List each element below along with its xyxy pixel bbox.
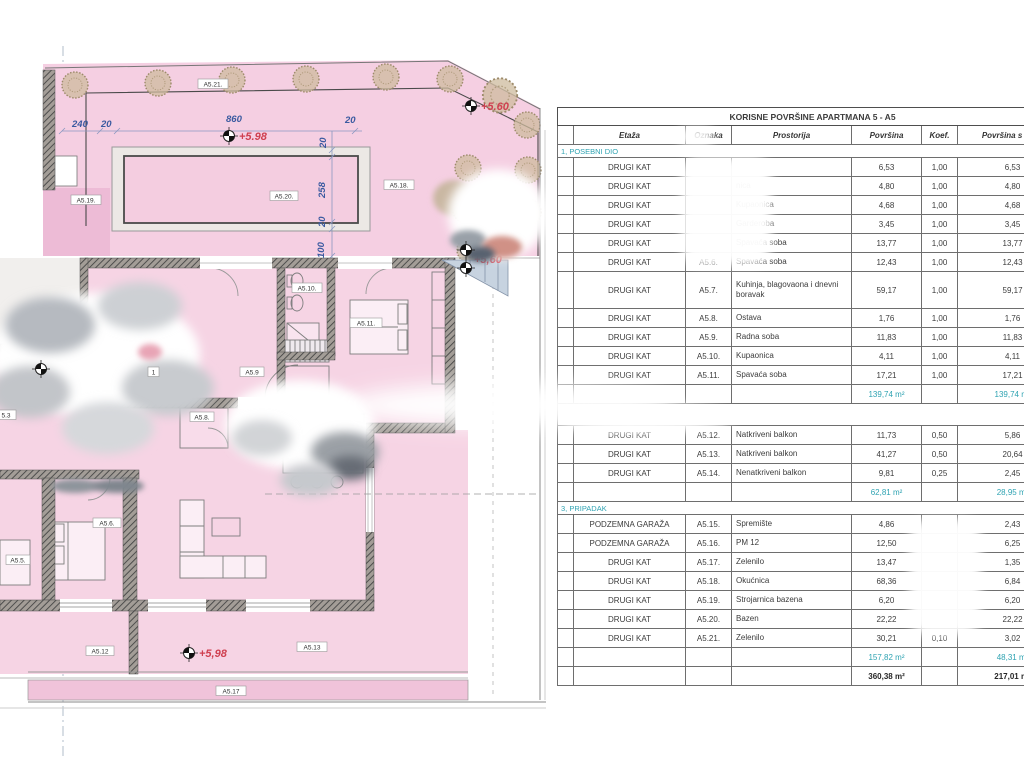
section-header: 1, POSEBNI DIO — [558, 145, 1024, 158]
subtotal-row: 157,82 m²48,31 m² — [558, 648, 1024, 667]
cell-povrsina: 6,53 — [852, 158, 922, 177]
cell-etaza: DRUGI KAT — [574, 629, 686, 648]
cell-blank — [922, 483, 958, 502]
section-header: 3, PRIPADAK — [558, 502, 1024, 515]
dim-240: 240 — [71, 119, 89, 130]
cell-blank — [558, 629, 574, 648]
total-row: 360,38 m²217,01 m² — [558, 667, 1024, 686]
table-header-row: Etaža Oznaka Prostorija Površina Koef. P… — [558, 126, 1024, 145]
section-header-row: 3, PRIPADAK — [558, 502, 1024, 515]
cell-etaza: PODZEMNA GARAŽA — [574, 515, 686, 534]
cell-oznaka: A5.19. — [686, 591, 732, 610]
label-a510: A5.10. — [292, 283, 322, 293]
cell-koef: 1,00 — [922, 272, 958, 309]
label-a521: A5.21. — [198, 79, 228, 89]
cell-povrsina-s-koef: 3,02 — [958, 629, 1024, 648]
cell-blank — [686, 648, 732, 667]
cell-povrsina: 11,83 — [852, 328, 922, 347]
cell-oznaka: A5.10. — [686, 347, 732, 366]
cell-oznaka: A5.12. — [686, 426, 732, 445]
cell-povrsina: 68,36 — [852, 572, 922, 591]
table-row: DRUGI KATA5.9.Radna soba11,831,0011,83 — [558, 328, 1024, 347]
table-row: DRUGI KATA5.14.Nenatkriveni balkon9,810,… — [558, 464, 1024, 483]
cell-blank — [558, 572, 574, 591]
svg-text:A5.12: A5.12 — [92, 649, 109, 656]
cell-koef: 0,50 — [922, 445, 958, 464]
greenery-strip — [28, 680, 468, 700]
label-a518: A5.18. — [384, 180, 414, 190]
cell-blank — [732, 483, 852, 502]
cell-blank — [558, 591, 574, 610]
section-header — [558, 404, 1024, 426]
label-a513: A5.13 — [297, 642, 327, 652]
cell-blank — [558, 385, 574, 404]
cell-prostorija: Spavaća soba — [732, 366, 852, 385]
elevation-598-top: +5.98 — [239, 131, 268, 143]
cell-koef: 0,10 — [922, 629, 958, 648]
cell-prostorija: Spavaća soba — [732, 253, 852, 272]
cell-prostorija: Zelenilo — [732, 553, 852, 572]
cell-prostorija: Nenatkriveni balkon — [732, 464, 852, 483]
cell-blank — [574, 483, 686, 502]
cell-povrsina: 17,21 — [852, 366, 922, 385]
label-a55: A5.5. — [6, 555, 30, 565]
cell-etaza: DRUGI KAT — [574, 553, 686, 572]
cell-blank — [922, 667, 958, 686]
cell-prostorija: Strojarnica bazena — [732, 591, 852, 610]
cell-oznaka: A5.17. — [686, 553, 732, 572]
cell-blank — [922, 385, 958, 404]
cell-povrsina: 4,80 — [852, 177, 922, 196]
cell-blank — [558, 667, 574, 686]
table-row: DRUGI KATA5.6.Spavaća soba12,431,0012,43 — [558, 253, 1024, 272]
cell-koef: 0,50 — [922, 426, 958, 445]
cell-povrsina: 4,86 — [852, 515, 922, 534]
dim-20a: 20 — [100, 119, 112, 130]
cell-koef: 1,00 — [922, 215, 958, 234]
cell-koef: 1,00 — [922, 177, 958, 196]
cell-oznaka: A5.21. — [686, 629, 732, 648]
area-table-container: KORISNE POVRŠINE APARTMANA 5 - A5 Etaža … — [557, 107, 1024, 707]
cell-blank — [732, 385, 852, 404]
cell-oznaka: A5.20. — [686, 610, 732, 629]
cell-blank — [558, 610, 574, 629]
table-row: DRUGI KAT6,531,006,53 — [558, 158, 1024, 177]
svg-text:5.3: 5.3 — [1, 413, 10, 420]
cell-koef — [922, 591, 958, 610]
dim-100: 100 — [316, 241, 327, 258]
cell-blank — [574, 385, 686, 404]
cell-prostorija: Bazen — [732, 610, 852, 629]
cell-povrsina-s-koef: 59,17 — [958, 272, 1024, 309]
cell-povrsina: 59,17 — [852, 272, 922, 309]
label-a511: A5.11. — [350, 318, 382, 328]
cell-koef: 0,25 — [922, 464, 958, 483]
col-header-prostorija: Prostorija — [732, 126, 852, 145]
svg-text:A5.11.: A5.11. — [357, 321, 376, 328]
cell-povrsina-s-koef: 3,45 — [958, 215, 1024, 234]
cell-blank — [558, 234, 574, 253]
svg-text:A5.9: A5.9 — [245, 370, 259, 377]
cell-oznaka: A5.14. — [686, 464, 732, 483]
cell-povrsina: 41,27 — [852, 445, 922, 464]
cell-prostorija: Ostava — [732, 309, 852, 328]
svg-text:A5.10.: A5.10. — [298, 286, 317, 293]
cell-oznaka: A5.16. — [686, 534, 732, 553]
subtotal-povrsina-s-koef: 139,74 m² — [958, 385, 1024, 404]
cell-povrsina: 4,11 — [852, 347, 922, 366]
cell-koef — [922, 610, 958, 629]
table-row: DRUGI KATKupaonica4,681,004,68 — [558, 196, 1024, 215]
label-a519: A5.19. — [71, 195, 101, 205]
cell-etaza: DRUGI KAT — [574, 272, 686, 309]
cell-povrsina: 12,50 — [852, 534, 922, 553]
subtotal-povrsina-s-koef: 28,95 m² — [958, 483, 1024, 502]
label-a56: A5.6. — [93, 518, 121, 528]
elevation-598-bottom: +5,98 — [199, 648, 228, 660]
table-row: DRUGI KATGarderoba3,451,003,45 — [558, 215, 1024, 234]
cell-oznaka — [686, 234, 732, 253]
cell-povrsina: 12,43 — [852, 253, 922, 272]
cell-blank — [686, 385, 732, 404]
svg-text:A5.8.: A5.8. — [194, 415, 209, 422]
cell-oznaka: A5.11. — [686, 366, 732, 385]
cell-blank — [574, 667, 686, 686]
cell-prostorija: Garderoba — [732, 215, 852, 234]
cell-oznaka: A5.18. — [686, 572, 732, 591]
dim-20b: 20 — [344, 115, 356, 126]
cell-povrsina-s-koef: 1,35 — [958, 553, 1024, 572]
table-row: DRUGI KATA5.20.Bazen22,2222,22 — [558, 610, 1024, 629]
table-row: DRUGI KATA5.21.Zelenilo30,210,103,02 — [558, 629, 1024, 648]
cell-etaza: DRUGI KAT — [574, 253, 686, 272]
cell-oznaka — [686, 158, 732, 177]
section-header-row: 1, POSEBNI DIO — [558, 145, 1024, 158]
cell-oznaka: A5.15. — [686, 515, 732, 534]
cell-oznaka — [686, 215, 732, 234]
table-row: DRUGI KATA5.11.Spavaća soba17,211,0017,2… — [558, 366, 1024, 385]
cell-prostorija: nica — [732, 177, 852, 196]
cell-oznaka: A5.13. — [686, 445, 732, 464]
cell-etaza: DRUGI KAT — [574, 215, 686, 234]
cell-oznaka — [686, 177, 732, 196]
screenshot-stage: 240 20 860 20 20 258 20 100 +5.98 +5.60 … — [0, 0, 1024, 768]
cell-povrsina: 11,73 — [852, 426, 922, 445]
section-header-row-blurred — [558, 404, 1024, 426]
cell-povrsina: 9,81 — [852, 464, 922, 483]
cell-etaza: DRUGI KAT — [574, 464, 686, 483]
cell-etaza: PODZEMNA GARAŽA — [574, 534, 686, 553]
cell-blank — [558, 464, 574, 483]
cell-koef: 1,00 — [922, 347, 958, 366]
cell-povrsina-s-koef: 2,43 — [958, 515, 1024, 534]
cell-povrsina: 13,47 — [852, 553, 922, 572]
cell-prostorija: PM 12 — [732, 534, 852, 553]
cell-koef: 1,00 — [922, 158, 958, 177]
cell-etaza: DRUGI KAT — [574, 158, 686, 177]
cell-povrsina: 13,77 — [852, 234, 922, 253]
cell-etaza: DRUGI KAT — [574, 426, 686, 445]
cell-oznaka: A5.7. — [686, 272, 732, 309]
subtotal-povrsina-s-koef: 48,31 m² — [958, 648, 1024, 667]
total-povrsina: 360,38 m² — [852, 667, 922, 686]
subtotal-povrsina: 62,81 m² — [852, 483, 922, 502]
cell-blank — [574, 648, 686, 667]
cell-povrsina-s-koef: 6,20 — [958, 591, 1024, 610]
label-a520: A5.20. — [270, 191, 298, 201]
cell-etaza: DRUGI KAT — [574, 177, 686, 196]
cell-prostorija: Kupaonica — [732, 347, 852, 366]
cell-povrsina-s-koef: 12,43 — [958, 253, 1024, 272]
cell-povrsina: 3,45 — [852, 215, 922, 234]
cell-etaza: DRUGI KAT — [574, 591, 686, 610]
cell-povrsina-s-koef: 6,53 — [958, 158, 1024, 177]
cell-blank — [558, 553, 574, 572]
table-row: DRUGI KATnica4,801,004,80 — [558, 177, 1024, 196]
cell-prostorija: Natkriveni balkon — [732, 426, 852, 445]
subtotal-povrsina: 157,82 m² — [852, 648, 922, 667]
col-header-etaza: Etaža — [574, 126, 686, 145]
cell-blank — [558, 215, 574, 234]
cell-povrsina-s-koef: 5,86 — [958, 426, 1024, 445]
cell-blank — [558, 648, 574, 667]
svg-text:A5.13: A5.13 — [304, 645, 321, 652]
cell-blank — [732, 667, 852, 686]
col-header-koef: Koef. — [922, 126, 958, 145]
cell-koef: 1,00 — [922, 253, 958, 272]
cell-blank — [558, 309, 574, 328]
cell-blank — [558, 445, 574, 464]
cell-etaza: DRUGI KAT — [574, 196, 686, 215]
col-header-oznaka: Oznaka — [686, 126, 732, 145]
cell-koef — [922, 534, 958, 553]
cell-etaza: DRUGI KAT — [574, 366, 686, 385]
svg-text:A5.17: A5.17 — [223, 689, 240, 696]
cell-prostorija: Kupaonica — [732, 196, 852, 215]
cell-povrsina: 6,20 — [852, 591, 922, 610]
svg-text:A5.21.: A5.21. — [204, 82, 223, 89]
table-row: DRUGI KATA5.8.Ostava1,761,001,76 — [558, 309, 1024, 328]
label-a58: A5.8. — [190, 412, 214, 422]
table-row: DRUGI KATA5.19.Strojarnica bazena6,206,2… — [558, 591, 1024, 610]
total-povrsina-s-koef: 217,01 m² — [958, 667, 1024, 686]
cell-prostorija: Zelenilo — [732, 629, 852, 648]
cell-etaza: DRUGI KAT — [574, 610, 686, 629]
cell-povrsina: 30,21 — [852, 629, 922, 648]
floor-plan: 240 20 860 20 20 258 20 100 +5.98 +5.60 … — [0, 0, 560, 768]
dim-860: 860 — [226, 114, 243, 125]
cell-koef — [922, 572, 958, 591]
cell-blank — [922, 648, 958, 667]
cell-blank — [732, 648, 852, 667]
cell-etaza: DRUGI KAT — [574, 234, 686, 253]
cell-prostorija: Radna soba — [732, 328, 852, 347]
cell-povrsina-s-koef: 2,45 — [958, 464, 1024, 483]
table-row: DRUGI KATA5.12.Natkriveni balkon11,730,5… — [558, 426, 1024, 445]
cell-blank — [558, 347, 574, 366]
table-body: KORISNE POVRŠINE APARTMANA 5 - A5 Etaža … — [558, 108, 1024, 686]
cell-povrsina: 1,76 — [852, 309, 922, 328]
cell-blank — [558, 366, 574, 385]
subtotal-row: 62,81 m²28,95 m² — [558, 483, 1024, 502]
cell-koef: 1,00 — [922, 328, 958, 347]
cell-etaza: DRUGI KAT — [574, 328, 686, 347]
cell-blank — [558, 426, 574, 445]
cell-povrsina-s-koef: 22,22 — [958, 610, 1024, 629]
svg-text:A5.18.: A5.18. — [390, 183, 409, 190]
dim-20c: 20 — [318, 137, 329, 149]
label-a512: A5.12 — [86, 646, 114, 656]
dim-20d: 20 — [317, 216, 328, 228]
cell-povrsina-s-koef: 6,84 — [958, 572, 1024, 591]
dim-258: 258 — [317, 181, 328, 199]
wall-terrace-left — [43, 70, 55, 190]
cell-etaza: DRUGI KAT — [574, 572, 686, 591]
subtotal-row: 139,74 m²139,74 m² — [558, 385, 1024, 404]
cell-koef: 1,00 — [922, 309, 958, 328]
svg-text:A5.6.: A5.6. — [99, 521, 114, 528]
cell-oznaka: A5.8. — [686, 309, 732, 328]
table-row: PODZEMNA GARAŽAA5.16.PM 1212,506,25 — [558, 534, 1024, 553]
table-title: KORISNE POVRŠINE APARTMANA 5 - A5 — [558, 108, 1024, 126]
table-row: DRUGI KATA5.17.Zelenilo13,471,35 — [558, 553, 1024, 572]
cell-blank — [558, 515, 574, 534]
cell-koef: 1,00 — [922, 234, 958, 253]
cell-povrsina: 4,68 — [852, 196, 922, 215]
elevation-560-top: +5.60 — [481, 101, 510, 113]
cell-etaza: DRUGI KAT — [574, 445, 686, 464]
cell-prostorija: Kuhinja, blagovaona i dnevni boravak — [732, 272, 852, 309]
cell-povrsina-s-koef: 4,68 — [958, 196, 1024, 215]
cell-koef: 1,00 — [922, 366, 958, 385]
cell-blank — [558, 328, 574, 347]
svg-text:A5.5.: A5.5. — [10, 558, 25, 565]
cell-povrsina-s-koef: 11,83 — [958, 328, 1024, 347]
cell-oznaka — [686, 196, 732, 215]
cell-koef — [922, 553, 958, 572]
table-row: DRUGI KATA5.10.Kupaonica4,111,004,11 — [558, 347, 1024, 366]
cell-prostorija: Spremište — [732, 515, 852, 534]
col-header-povrsina: Površina — [852, 126, 922, 145]
cell-povrsina-s-koef: 6,25 — [958, 534, 1024, 553]
cell-blank — [686, 483, 732, 502]
table-row: PODZEMNA GARAŽAA5.15.Spremište4,862,43 — [558, 515, 1024, 534]
cell-oznaka: A5.9. — [686, 328, 732, 347]
label-a59: A5.9 — [240, 367, 264, 377]
cell-koef: 1,00 — [922, 196, 958, 215]
cell-koef — [922, 515, 958, 534]
label-door1: 1 — [148, 367, 159, 377]
col-header-blank — [558, 126, 574, 145]
cell-oznaka: A5.6. — [686, 253, 732, 272]
cell-blank — [686, 667, 732, 686]
table-title-row: KORISNE POVRŠINE APARTMANA 5 - A5 — [558, 108, 1024, 126]
table-row: DRUGI KATSpavaća soba13,771,0013,77 — [558, 234, 1024, 253]
cell-prostorija: Okućnica — [732, 572, 852, 591]
cell-povrsina: 22,22 — [852, 610, 922, 629]
label-a517: A5.17 — [216, 686, 246, 696]
col-header-povrsina-s-koef: Površina s koef. — [958, 126, 1024, 145]
svg-text:A5.20.: A5.20. — [275, 194, 294, 201]
table-row: DRUGI KATA5.7.Kuhinja, blagovaona i dnev… — [558, 272, 1024, 309]
svg-text:A5.19.: A5.19. — [77, 198, 96, 205]
cell-prostorija: Spavaća soba — [732, 234, 852, 253]
cell-blank — [558, 253, 574, 272]
subtotal-povrsina: 139,74 m² — [852, 385, 922, 404]
cell-prostorija — [732, 158, 852, 177]
balcony-strip — [0, 611, 468, 674]
table-row: DRUGI KATA5.13.Natkriveni balkon41,270,5… — [558, 445, 1024, 464]
cell-blank — [558, 534, 574, 553]
area-table: KORISNE POVRŠINE APARTMANA 5 - A5 Etaža … — [557, 107, 1024, 686]
cell-povrsina-s-koef: 20,64 — [958, 445, 1024, 464]
cell-prostorija: Natkriveni balkon — [732, 445, 852, 464]
table-row: DRUGI KATA5.18.Okućnica68,366,84 — [558, 572, 1024, 591]
cell-povrsina-s-koef: 4,80 — [958, 177, 1024, 196]
cell-blank — [558, 158, 574, 177]
cell-etaza: DRUGI KAT — [574, 347, 686, 366]
cell-blank — [558, 196, 574, 215]
cell-blank — [558, 483, 574, 502]
cell-blank — [558, 272, 574, 309]
cell-povrsina-s-koef: 13,77 — [958, 234, 1024, 253]
svg-text:1: 1 — [152, 370, 156, 377]
label-a53: 5.3 — [0, 410, 16, 420]
cell-blank — [558, 177, 574, 196]
cell-etaza: DRUGI KAT — [574, 309, 686, 328]
cell-povrsina-s-koef: 4,11 — [958, 347, 1024, 366]
cell-povrsina-s-koef: 1,76 — [958, 309, 1024, 328]
cell-povrsina-s-koef: 17,21 — [958, 366, 1024, 385]
